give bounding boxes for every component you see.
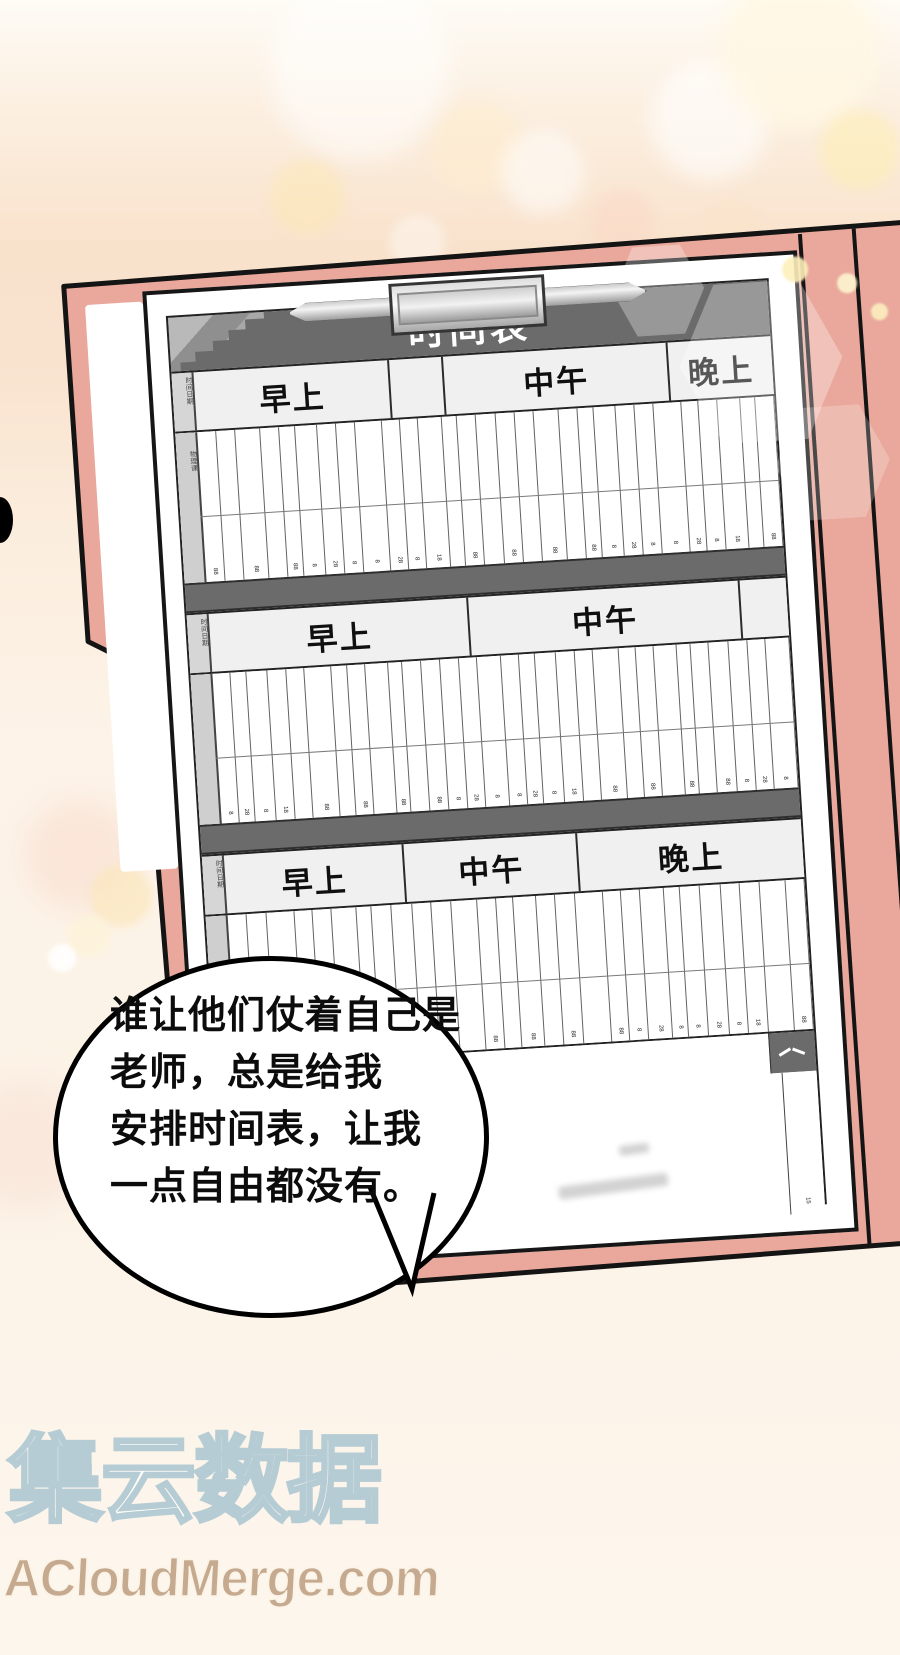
tick-label: 88 — [529, 1033, 535, 1040]
watermark-cn: 集云数据 — [8, 1404, 380, 1541]
tick-label: 88 — [570, 1030, 576, 1037]
tick-label: 28 — [761, 776, 767, 783]
tick-label: 88 — [492, 1035, 498, 1042]
tick-label: 8 — [610, 545, 616, 549]
faint-smudge — [618, 1142, 649, 1156]
tick-label: 8 — [782, 776, 788, 780]
tick-label: 8 — [649, 542, 655, 546]
tick-label: 88 — [551, 547, 557, 554]
tick-label: 28 — [630, 542, 636, 549]
tick-label: 8 — [677, 1025, 683, 1029]
header-cell-4: 晚上 — [668, 336, 774, 400]
bokeh-circle — [270, 160, 345, 235]
bubble-text: 谁让他们仗着自己是 老师，总是给我 安排时间表，让我 一点自由都没有。 — [110, 988, 461, 1216]
tick-label: 88 — [724, 778, 730, 785]
tick-label: 88 — [770, 533, 776, 540]
panel-edge-dot — [0, 497, 13, 543]
tick-label: 88 — [800, 1016, 806, 1023]
tick-label: 28 — [695, 538, 701, 545]
bubble-text-line: 老师，总是给我 — [110, 1045, 461, 1102]
tick-label: 8 — [455, 797, 461, 801]
comic-panel: 时间表 时间日期早上中午晚上物理课88888882888288188888888… — [0, 0, 900, 1655]
tick-label: 88 — [650, 783, 656, 790]
bubble-text-line: 一点自由都没有。 — [110, 1159, 461, 1216]
header-cell-2 — [390, 357, 447, 418]
tick-label: 8 — [550, 791, 556, 795]
corner-stair-pattern — [168, 312, 267, 372]
bubble-text-line: 谁让他们仗着自己是 — [110, 988, 461, 1045]
bokeh-circle — [500, 130, 585, 215]
tick-label: 28 — [532, 790, 538, 797]
right-end-column: 15 — [782, 1071, 826, 1215]
tick-label: 88 — [611, 785, 617, 792]
tick-label: 8 — [713, 538, 719, 542]
tick-label: 18 — [435, 554, 441, 561]
tick-label: 8 — [311, 563, 317, 567]
tick-label: 8 — [374, 559, 380, 563]
header-cell-1: 早上 — [224, 844, 407, 913]
tick-label: 88 — [435, 796, 441, 803]
tick-label: 8 — [414, 557, 420, 561]
tick-label: 88 — [510, 549, 516, 556]
header-cell-3 — [740, 578, 789, 639]
tick-label: 18 — [734, 535, 740, 542]
tick-label: 8 — [262, 809, 268, 813]
tick-label: 88 — [292, 563, 298, 570]
tick-label: 8 — [494, 794, 500, 798]
tick-label: 18 — [570, 788, 576, 795]
tick-label: 28 — [657, 1025, 663, 1032]
bokeh-circle — [720, 0, 880, 130]
tick-label: 88 — [617, 1027, 623, 1034]
bokeh-circle — [430, 100, 525, 195]
tick-label: 28 — [396, 556, 402, 563]
bubble-text-line: 安排时间表，让我 — [110, 1102, 461, 1159]
tick-label: 8 — [743, 779, 749, 783]
bokeh-circle — [650, 60, 770, 180]
tick-label: 8 — [515, 793, 521, 797]
faint-smudge — [558, 1172, 669, 1199]
tick-label: 8 — [636, 1028, 642, 1032]
tick-label: 28 — [473, 794, 479, 801]
tick-label: 88 — [252, 565, 258, 572]
band-block-end — [768, 1031, 816, 1074]
tick-label: 8 — [695, 1024, 701, 1028]
header-cell-1: 早上 — [193, 360, 393, 430]
tick-label: 88 — [688, 780, 694, 787]
tick-label: 88 — [322, 803, 328, 810]
tick-label: 88 — [361, 801, 367, 808]
tick-label: 28 — [715, 1021, 721, 1028]
tick-label: 18 — [755, 1019, 761, 1026]
tick-label: 8 — [227, 811, 233, 815]
tick-label: 28 — [243, 808, 249, 815]
clip-clamp — [388, 274, 547, 336]
tick-label: 28 — [332, 560, 338, 567]
tick-label: 88 — [212, 568, 218, 575]
tick-label: 8 — [350, 561, 356, 565]
watermark-en: ACloudMerge.com — [2, 1548, 440, 1609]
tick-label: 8 — [672, 541, 678, 545]
header-cell-2: 中午 — [403, 833, 581, 902]
bokeh-circle — [820, 110, 900, 190]
tick-label: 88 — [590, 544, 596, 551]
tick-label: 88 — [400, 799, 406, 806]
tick-label: 15 — [804, 1197, 810, 1204]
tick-label: 88 — [471, 552, 477, 559]
tick-label: 18 — [282, 806, 288, 813]
bokeh-circle — [270, 0, 450, 160]
tick-label: 8 — [735, 1022, 741, 1026]
